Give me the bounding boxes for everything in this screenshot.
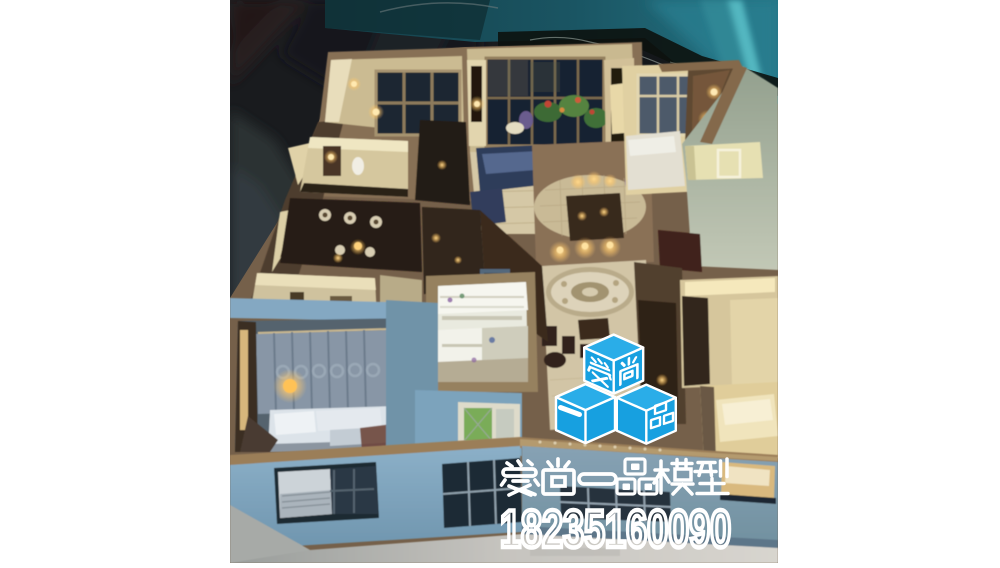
- svg-text:18235160090: 18235160090: [500, 499, 731, 559]
